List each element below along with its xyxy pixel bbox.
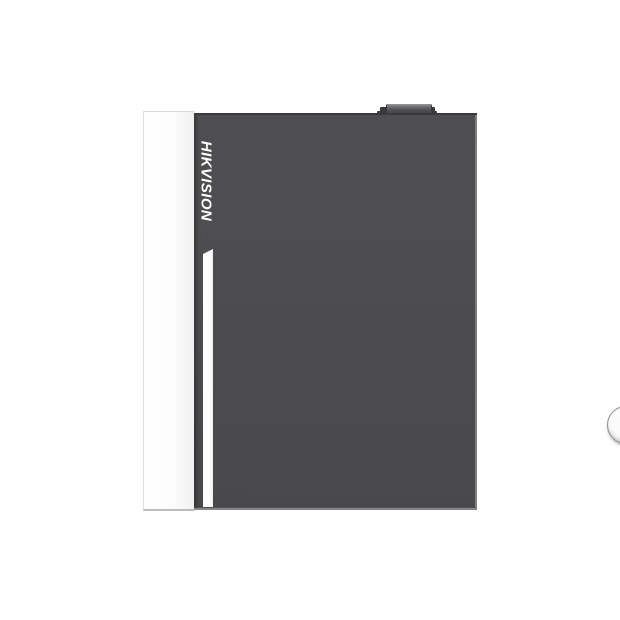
logo-accent-stripe <box>203 249 213 507</box>
hikvision-logo: HIKVISION <box>198 141 215 221</box>
product-photo: HIKVISION <box>0 0 620 620</box>
enclosure-side-panel <box>143 111 194 511</box>
key-lock <box>607 406 620 444</box>
enclosure-door <box>194 113 477 510</box>
